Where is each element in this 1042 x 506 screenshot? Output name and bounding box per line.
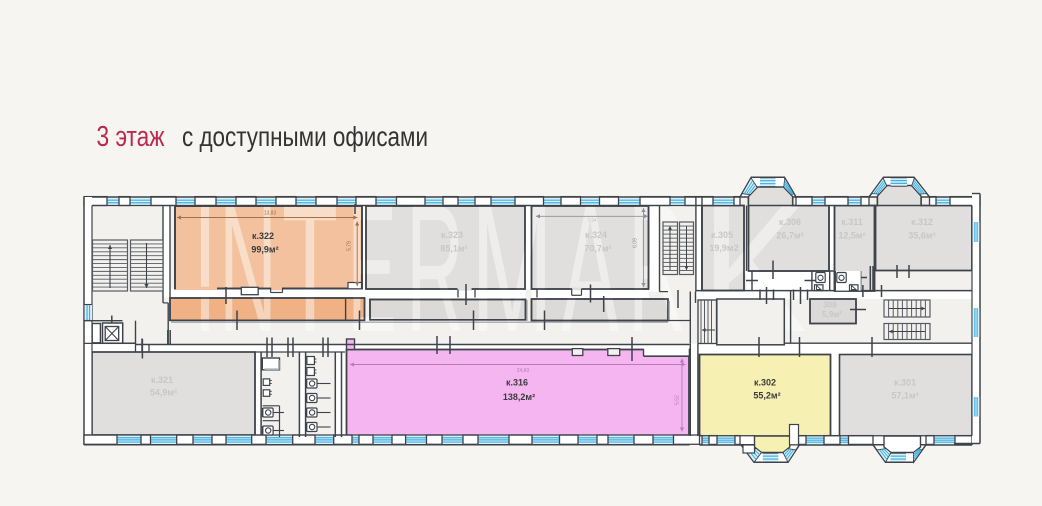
svg-text:55,2м²: 55,2м² [753,391,780,401]
svg-text:к.316: к.316 [506,378,528,388]
svg-text:к.302: к.302 [754,378,776,388]
svg-text:к.305: к.305 [711,230,733,240]
svg-text:54,9м²: 54,9м² [150,388,177,398]
svg-text:7,54: 7,54 [588,218,597,223]
svg-text:138,2м²: 138,2м² [503,392,535,402]
svg-text:12,5м²: 12,5м² [838,231,865,241]
svg-text:70,7м²: 70,7м² [584,244,611,254]
svg-text:57,1м²: 57,1м² [891,391,918,401]
svg-text:5,79: 5,79 [347,241,353,251]
svg-text:к.323: к.323 [441,230,463,240]
svg-text:85,1м²: 85,1м² [440,244,467,254]
svg-text:к.321: к.321 [151,375,173,385]
svg-text:24,60: 24,60 [517,368,530,374]
svg-text:308: 308 [823,301,837,310]
svg-text:6,09: 6,09 [633,238,639,248]
svg-text:к.311: к.311 [841,217,863,227]
svg-text:13,83: 13,83 [264,211,277,217]
svg-text:к.312: к.312 [911,217,933,227]
svg-text:19,9м2: 19,9м2 [709,243,738,253]
svg-text:26,7м²: 26,7м² [776,231,803,241]
svg-text:к.322: к.322 [252,231,274,241]
svg-text:5,9м²: 5,9м² [822,310,842,319]
svg-text:35,6м²: 35,6м² [908,231,935,241]
svg-text:с доступными офисами: с доступными офисами [182,121,428,152]
svg-text:к.306: к.306 [779,217,801,227]
svg-text:99,9м²: 99,9м² [251,245,278,255]
svg-text:к.324: к.324 [585,230,607,240]
svg-text:5,52: 5,52 [675,395,681,405]
svg-text:к.301: к.301 [894,378,916,388]
svg-text:3 этаж: 3 этаж [97,121,165,153]
